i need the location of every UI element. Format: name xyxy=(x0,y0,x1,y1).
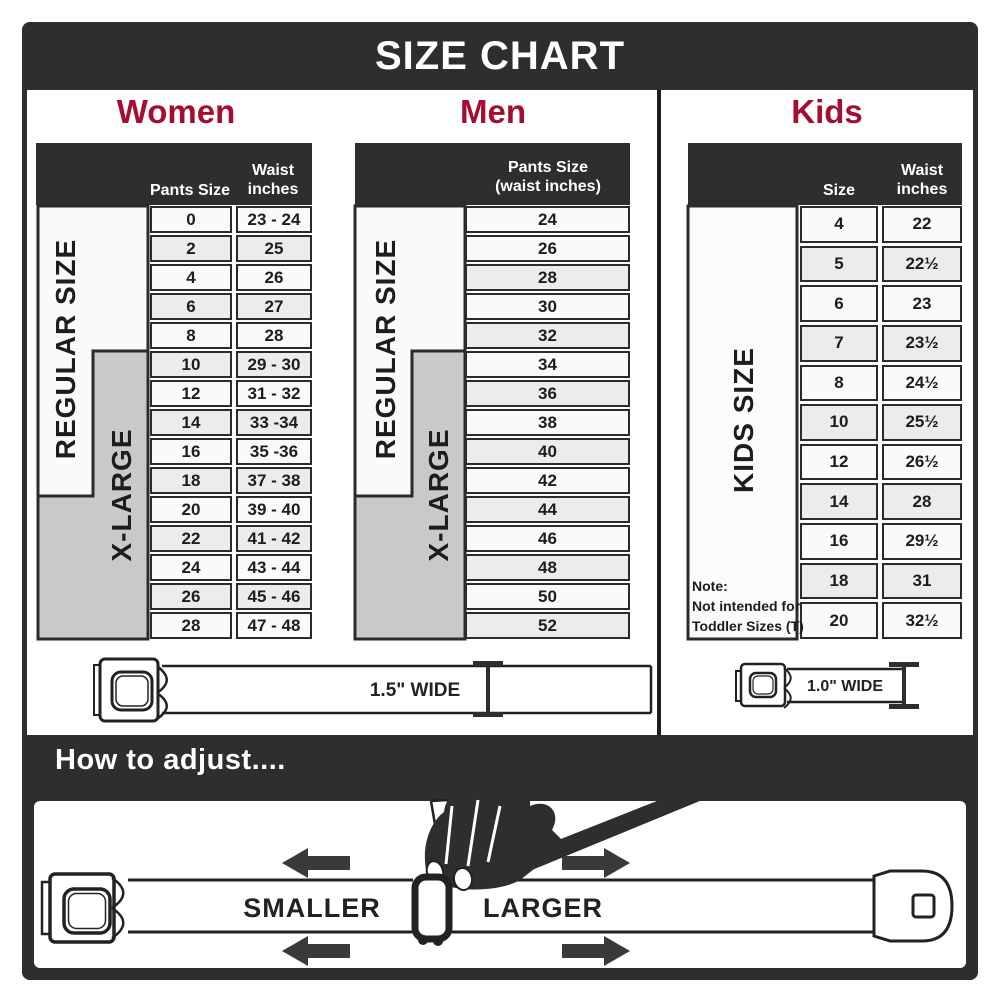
how-to-adjust-heading: How to adjust.... xyxy=(55,744,286,777)
size-cell: 14 xyxy=(150,409,232,436)
kids-note-line: Note: xyxy=(692,576,804,596)
waist-cell: 22 xyxy=(882,206,962,243)
waist-cell: 28 xyxy=(236,322,312,349)
size-cell: 46 xyxy=(465,525,630,552)
women-waist-header: Waist inches xyxy=(241,161,305,199)
kids-width-mark-bar xyxy=(902,666,906,706)
size-cell: 28 xyxy=(465,264,630,291)
kids-size-header: Size xyxy=(809,181,869,200)
size-cell: 0 xyxy=(150,206,232,233)
adult-width-mark-bar xyxy=(486,664,490,714)
size-cell: 12 xyxy=(800,444,878,481)
slider-foot xyxy=(433,936,443,946)
size-cell: 16 xyxy=(800,523,878,560)
arrow-left-icon xyxy=(282,848,350,878)
waist-cell: 25½ xyxy=(882,404,962,441)
slider-foot xyxy=(418,935,428,945)
size-cell: 18 xyxy=(150,467,232,494)
women-xlarge-label: X-LARGE xyxy=(102,350,142,640)
size-chart-banner: SIZE CHART xyxy=(22,22,978,90)
size-cell: 6 xyxy=(800,285,878,322)
page-title: SIZE CHART xyxy=(375,34,625,79)
men-pants-size-header: Pants Size (waist inches) xyxy=(492,158,604,196)
size-cell: 48 xyxy=(465,554,630,581)
size-cell: 36 xyxy=(465,380,630,407)
adjust-belt-tail-hole xyxy=(913,895,934,917)
kids-section-divider xyxy=(657,90,661,735)
size-cell: 50 xyxy=(465,583,630,610)
size-cell: 10 xyxy=(150,351,232,378)
size-cell: 18 xyxy=(800,563,878,600)
waist-cell: 23½ xyxy=(882,325,962,362)
size-cell: 52 xyxy=(465,612,630,639)
size-cell: 30 xyxy=(465,293,630,320)
adult-belt-illustration: 1.5" WIDE xyxy=(40,648,655,728)
size-cell: 14 xyxy=(800,483,878,520)
size-cell: 24 xyxy=(465,206,630,233)
waist-cell: 47 - 48 xyxy=(236,612,312,639)
size-cell: 24 xyxy=(150,554,232,581)
waist-cell: 33 -34 xyxy=(236,409,312,436)
size-cell: 38 xyxy=(465,409,630,436)
size-chart-poster: { "banner": { "title": "SIZE CHART" }, "… xyxy=(0,0,1000,1000)
women-pants-size-header: Pants Size xyxy=(145,181,235,200)
adult-belt-width-label: 1.5" WIDE xyxy=(370,680,460,701)
size-cell: 5 xyxy=(800,246,878,283)
waist-cell: 23 xyxy=(882,285,962,322)
men-section-title: Men xyxy=(403,93,583,131)
size-cell: 7 xyxy=(800,325,878,362)
size-cell: 40 xyxy=(465,438,630,465)
size-cell: 20 xyxy=(800,602,878,639)
kids-belt-illustration: 1.0" WIDE xyxy=(700,650,960,720)
waist-cell: 24½ xyxy=(882,365,962,402)
waist-cell: 31 xyxy=(882,563,962,600)
size-cell: 2 xyxy=(150,235,232,262)
waist-cell: 37 - 38 xyxy=(236,467,312,494)
waist-cell: 29 - 30 xyxy=(236,351,312,378)
kids-section-title: Kids xyxy=(737,93,917,131)
size-cell: 10 xyxy=(800,404,878,441)
size-cell: 26 xyxy=(465,235,630,262)
size-cell: 8 xyxy=(150,322,232,349)
kids-size-table: 422 522½ 623 723½ 824½ 1025½ 1226½ 1428 … xyxy=(800,206,962,639)
size-cell: 20 xyxy=(150,496,232,523)
waist-cell: 27 xyxy=(236,293,312,320)
kids-belt-width-label: 1.0" WIDE xyxy=(807,678,883,695)
kids-note-line: Toddler Sizes (T) xyxy=(692,616,804,636)
women-regular-size-label: REGULAR SIZE xyxy=(46,204,86,494)
arrow-left-icon xyxy=(282,936,350,966)
arrow-right-icon xyxy=(562,936,630,966)
kids-size-label: KIDS SIZE xyxy=(724,275,764,565)
kids-note: Note: Not intended for Toddler Sizes (T) xyxy=(692,576,804,636)
waist-cell: 41 - 42 xyxy=(236,525,312,552)
waist-cell: 25 xyxy=(236,235,312,262)
women-section-title: Women xyxy=(76,93,276,131)
men-xlarge-label: X-LARGE xyxy=(419,350,459,640)
waist-cell: 31 - 32 xyxy=(236,380,312,407)
size-cell: 8 xyxy=(800,365,878,402)
size-cell: 4 xyxy=(800,206,878,243)
waist-cell: 32½ xyxy=(882,602,962,639)
waist-cell: 29½ xyxy=(882,523,962,560)
size-cell: 12 xyxy=(150,380,232,407)
size-cell: 28 xyxy=(150,612,232,639)
smaller-label: SMALLER xyxy=(243,893,381,923)
waist-cell: 45 - 46 xyxy=(236,583,312,610)
waist-cell: 43 - 44 xyxy=(236,554,312,581)
size-cell: 42 xyxy=(465,467,630,494)
size-cell: 26 xyxy=(150,583,232,610)
waist-cell: 35 -36 xyxy=(236,438,312,465)
size-cell: 4 xyxy=(150,264,232,291)
waist-cell: 22½ xyxy=(882,246,962,283)
kids-waist-header: Waist inches xyxy=(890,161,954,199)
size-cell: 16 xyxy=(150,438,232,465)
adjust-illustration: SMALLER LARGER xyxy=(34,801,966,968)
larger-label: LARGER xyxy=(483,893,603,923)
size-cell: 32 xyxy=(465,322,630,349)
size-cell: 34 xyxy=(465,351,630,378)
waist-cell: 28 xyxy=(882,483,962,520)
men-regular-size-label: REGULAR SIZE xyxy=(366,204,406,494)
size-cell: 44 xyxy=(465,496,630,523)
size-cell: 22 xyxy=(150,525,232,552)
waist-cell: 26½ xyxy=(882,444,962,481)
men-size-table: 24 26 28 30 32 34 36 38 40 42 44 46 48 5… xyxy=(465,206,630,639)
belt-slider xyxy=(415,877,449,939)
waist-cell: 39 - 40 xyxy=(236,496,312,523)
waist-cell: 26 xyxy=(236,264,312,291)
waist-cell: 23 - 24 xyxy=(236,206,312,233)
women-size-table: 023 - 24 225 426 627 828 1029 - 30 1231 … xyxy=(150,206,312,639)
kids-note-line: Not intended for xyxy=(692,596,804,616)
size-cell: 6 xyxy=(150,293,232,320)
